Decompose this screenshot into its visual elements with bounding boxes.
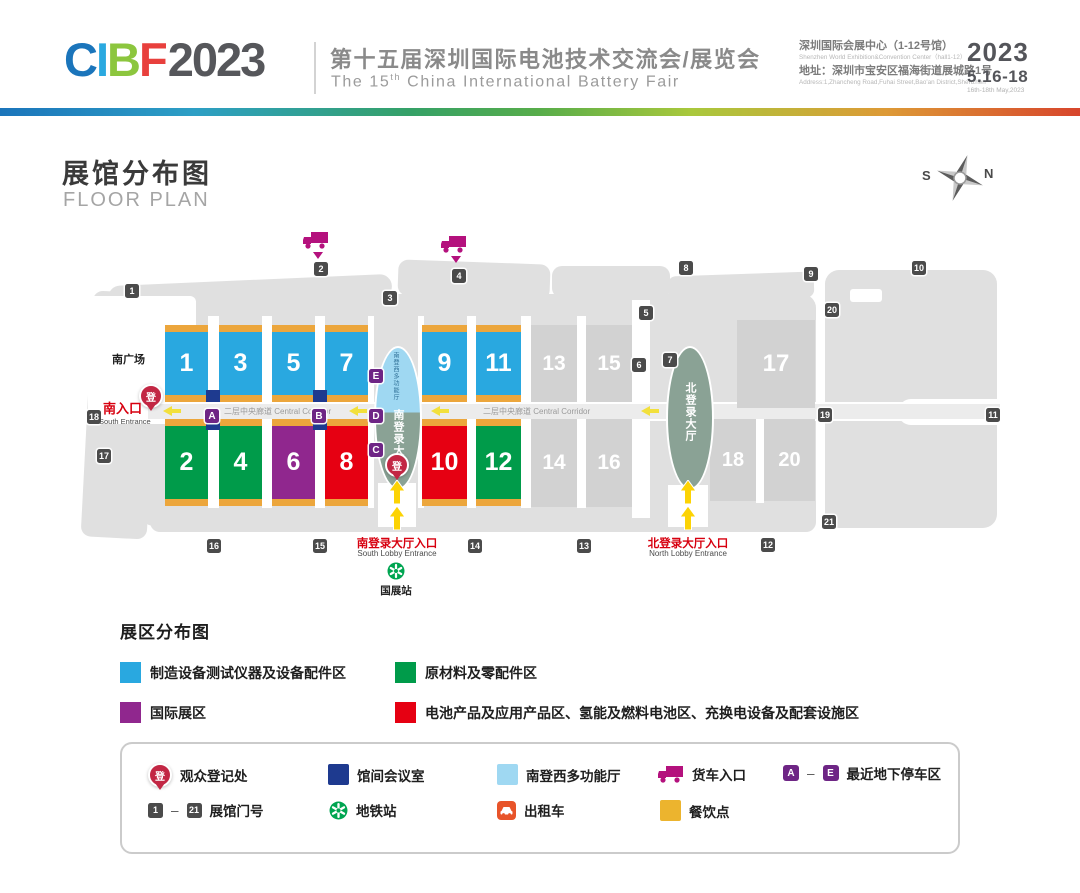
legend-meeting-room: 馆间会议室 xyxy=(328,764,425,785)
venue-name-en: Shenzhen World Exhibition&Convention Cen… xyxy=(799,54,967,61)
parking-badge-e-icon: E xyxy=(823,765,839,781)
hall-20: 20 xyxy=(764,419,815,501)
map-background-shape xyxy=(668,271,815,302)
gate-16: 16 xyxy=(207,539,221,553)
date-english: 16th-18th May,2023 xyxy=(967,88,1029,95)
hall-12: 12 xyxy=(476,419,521,506)
meeting-room-block xyxy=(206,390,220,402)
up-arrow-icon xyxy=(680,506,696,530)
logo-letter-b: B xyxy=(107,33,139,86)
zone-color-swatch xyxy=(395,702,416,723)
zone-item-international: 国际展区 xyxy=(120,702,206,723)
zone-item-battery-products: 电池产品及应用产品区、氢能及燃料电池区、充换电设备及配套设施区 xyxy=(395,702,859,723)
hall-10: 10 xyxy=(422,419,467,506)
up-arrow-icon xyxy=(389,506,405,530)
corridor-arrow-icon xyxy=(641,406,659,416)
truck-down-arrow-icon xyxy=(313,252,323,264)
registration-pin-icon: 登 xyxy=(148,763,172,787)
hall-17: 17 xyxy=(737,320,815,408)
hall-13: 13 xyxy=(531,325,577,402)
parking-badge-b: B xyxy=(312,409,326,423)
gate-8: 8 xyxy=(679,261,693,275)
zone-item-equipment: 制造设备测试仪器及设备配件区 xyxy=(120,662,346,683)
south-entrance-label-cn: 南入口 xyxy=(103,398,142,417)
central-corridor-label: 二层中央廊道 Central Corridor xyxy=(483,406,590,417)
gate-13: 13 xyxy=(577,539,591,553)
hall-11: 11 xyxy=(476,325,521,402)
hall-4: 4 xyxy=(219,419,262,506)
up-arrow-icon xyxy=(389,480,405,504)
south-entrance-label-en: South Entrance xyxy=(99,417,151,426)
hall-3: 3 xyxy=(219,325,262,402)
food-swatch xyxy=(660,800,681,821)
north-lobby-label: 北登录大厅 xyxy=(682,382,698,442)
hall-9: 9 xyxy=(422,325,467,402)
map-background-shape xyxy=(397,259,550,300)
parking-badge-e: E xyxy=(369,369,383,383)
parking-badge-d: D xyxy=(369,409,383,423)
section-title-en: FLOOR PLAN xyxy=(63,189,210,212)
gate-19: 19 xyxy=(818,408,832,422)
metro-icon xyxy=(387,562,405,580)
multi-function-hall-swatch xyxy=(497,764,518,785)
registration-pin: 登 xyxy=(139,384,163,408)
legend-gate-numbers: 1 – 21 展馆门号 xyxy=(148,800,264,820)
gate-7: 7 xyxy=(663,353,677,367)
meeting-room-swatch xyxy=(328,764,349,785)
zone-label: 制造设备测试仪器及设备配件区 xyxy=(150,663,346,683)
south-plaza-label: 南广场 xyxy=(112,351,145,367)
hall-15: 15 xyxy=(586,325,632,402)
gate-9: 9 xyxy=(804,267,818,281)
header-gradient-bar xyxy=(0,108,1080,116)
gate-6: 6 xyxy=(632,358,646,372)
logo-letter-i: I xyxy=(96,33,107,86)
venue-block: 深圳国际会展中心（1-12号馆） Shenzhen World Exhibiti… xyxy=(799,40,967,90)
gate-21-icon: 21 xyxy=(187,803,202,818)
corridor-arrow-icon xyxy=(431,406,449,416)
legend-parking: A – E 最近地下停车区 xyxy=(783,763,941,783)
registration-pin: 登 xyxy=(385,453,409,477)
hall-2: 2 xyxy=(165,419,208,506)
gate-2: 2 xyxy=(314,262,328,276)
legend-food: 餐饮点 xyxy=(660,800,730,821)
cibf-logo: CIBF2023 xyxy=(64,36,264,83)
zones-legend-title: 展区分布图 xyxy=(120,618,210,643)
section-title-cn: 展馆分布图 xyxy=(62,152,212,191)
gate-5: 5 xyxy=(639,306,653,320)
south-multi-hall-label: 南登西多功能厅 xyxy=(391,352,400,401)
icons-legend-box xyxy=(120,742,960,854)
hall-6: 6 xyxy=(272,419,315,506)
truck-icon xyxy=(441,235,467,254)
parking-badge-a: A xyxy=(205,409,219,423)
gate-15: 15 xyxy=(313,539,327,553)
map-gap xyxy=(756,419,764,503)
legend-visitor-registration: 登 观众登记处 xyxy=(148,763,248,787)
floor-plan-page: CIBF2023 第十五届深圳国际电池技术交流会/展览会 The 15th Ch… xyxy=(0,0,1080,893)
south-lobby-entrance-en: South Lobby Entrance xyxy=(352,549,442,558)
gate-3: 3 xyxy=(383,291,397,305)
hall-7: 7 xyxy=(325,325,368,402)
legend-taxi: 出租车 xyxy=(497,800,565,820)
gate-20: 20 xyxy=(825,303,839,317)
metro-icon xyxy=(329,801,348,820)
zone-color-swatch xyxy=(395,662,416,683)
gate-12: 12 xyxy=(761,538,775,552)
hall-16: 16 xyxy=(586,419,632,507)
gate-21: 21 xyxy=(822,515,836,529)
fair-title-cn: 第十五届深圳国际电池技术交流会/展览会 xyxy=(330,42,761,74)
date-range: 5.16-18 xyxy=(967,68,1029,85)
venue-name-cn: 深圳国际会展中心（1-12号馆） xyxy=(799,40,967,53)
corridor-arrow-icon xyxy=(163,406,181,416)
taxi-icon xyxy=(497,801,516,820)
legend-metro: 地铁站 xyxy=(329,800,397,820)
map-gap xyxy=(850,289,882,302)
zone-color-swatch xyxy=(120,662,141,683)
corridor-arrow-icon xyxy=(349,406,367,416)
gate-14: 14 xyxy=(468,539,482,553)
logo-year: 2023 xyxy=(168,33,265,86)
meeting-room-block xyxy=(313,390,327,402)
truck-icon xyxy=(658,765,684,784)
date-block: 2023 5.16-18 16th-18th May,2023 xyxy=(967,39,1029,95)
gate-17: 17 xyxy=(97,449,111,463)
venue-address-cn: 地址：深圳市宝安区福海街道展城路1号 xyxy=(799,65,967,78)
zone-color-swatch xyxy=(120,702,141,723)
gate-4: 4 xyxy=(452,269,466,283)
north-lobby-entrance-en: North Lobby Entrance xyxy=(643,549,733,558)
legend-multi-function-hall: 南登西多功能厅 xyxy=(497,764,621,785)
compass-icon xyxy=(918,150,1002,206)
parking-badge-a-icon: A xyxy=(783,765,799,781)
hall-18: 18 xyxy=(710,419,756,501)
legend-truck-entrance: 货车入口 xyxy=(658,764,746,784)
header-divider xyxy=(314,42,316,94)
truck-icon xyxy=(303,231,329,250)
venue-address-en: Address:1,Zhancheng Road,Fuhai Street,Ba… xyxy=(799,79,967,86)
zone-label: 电池产品及应用产品区、氢能及燃料电池区、充换电设备及配套设施区 xyxy=(425,703,859,723)
zone-item-materials: 原材料及零配件区 xyxy=(395,662,537,683)
date-year: 2023 xyxy=(967,39,1029,65)
gate-11: 11 xyxy=(986,408,1000,422)
truck-down-arrow-icon xyxy=(451,256,461,268)
parking-badge-c: C xyxy=(369,443,383,457)
up-arrow-icon xyxy=(680,480,696,504)
logo-letter-f: F xyxy=(139,33,166,86)
metro-station-label: 国展站 xyxy=(376,583,416,598)
fair-title-en: The 15th China International Battery Fai… xyxy=(331,72,680,91)
zone-label: 国际展区 xyxy=(150,703,206,723)
hall-5: 5 xyxy=(272,325,315,402)
gate-1-icon: 1 xyxy=(148,803,163,818)
logo-letter-c: C xyxy=(64,33,96,86)
zone-label: 原材料及零配件区 xyxy=(425,663,537,683)
gate-1: 1 xyxy=(125,284,139,298)
hall-8: 8 xyxy=(325,419,368,506)
gate-10: 10 xyxy=(912,261,926,275)
map-background-shape xyxy=(552,266,670,298)
hall-14: 14 xyxy=(531,419,577,507)
hall-1: 1 xyxy=(165,325,208,402)
